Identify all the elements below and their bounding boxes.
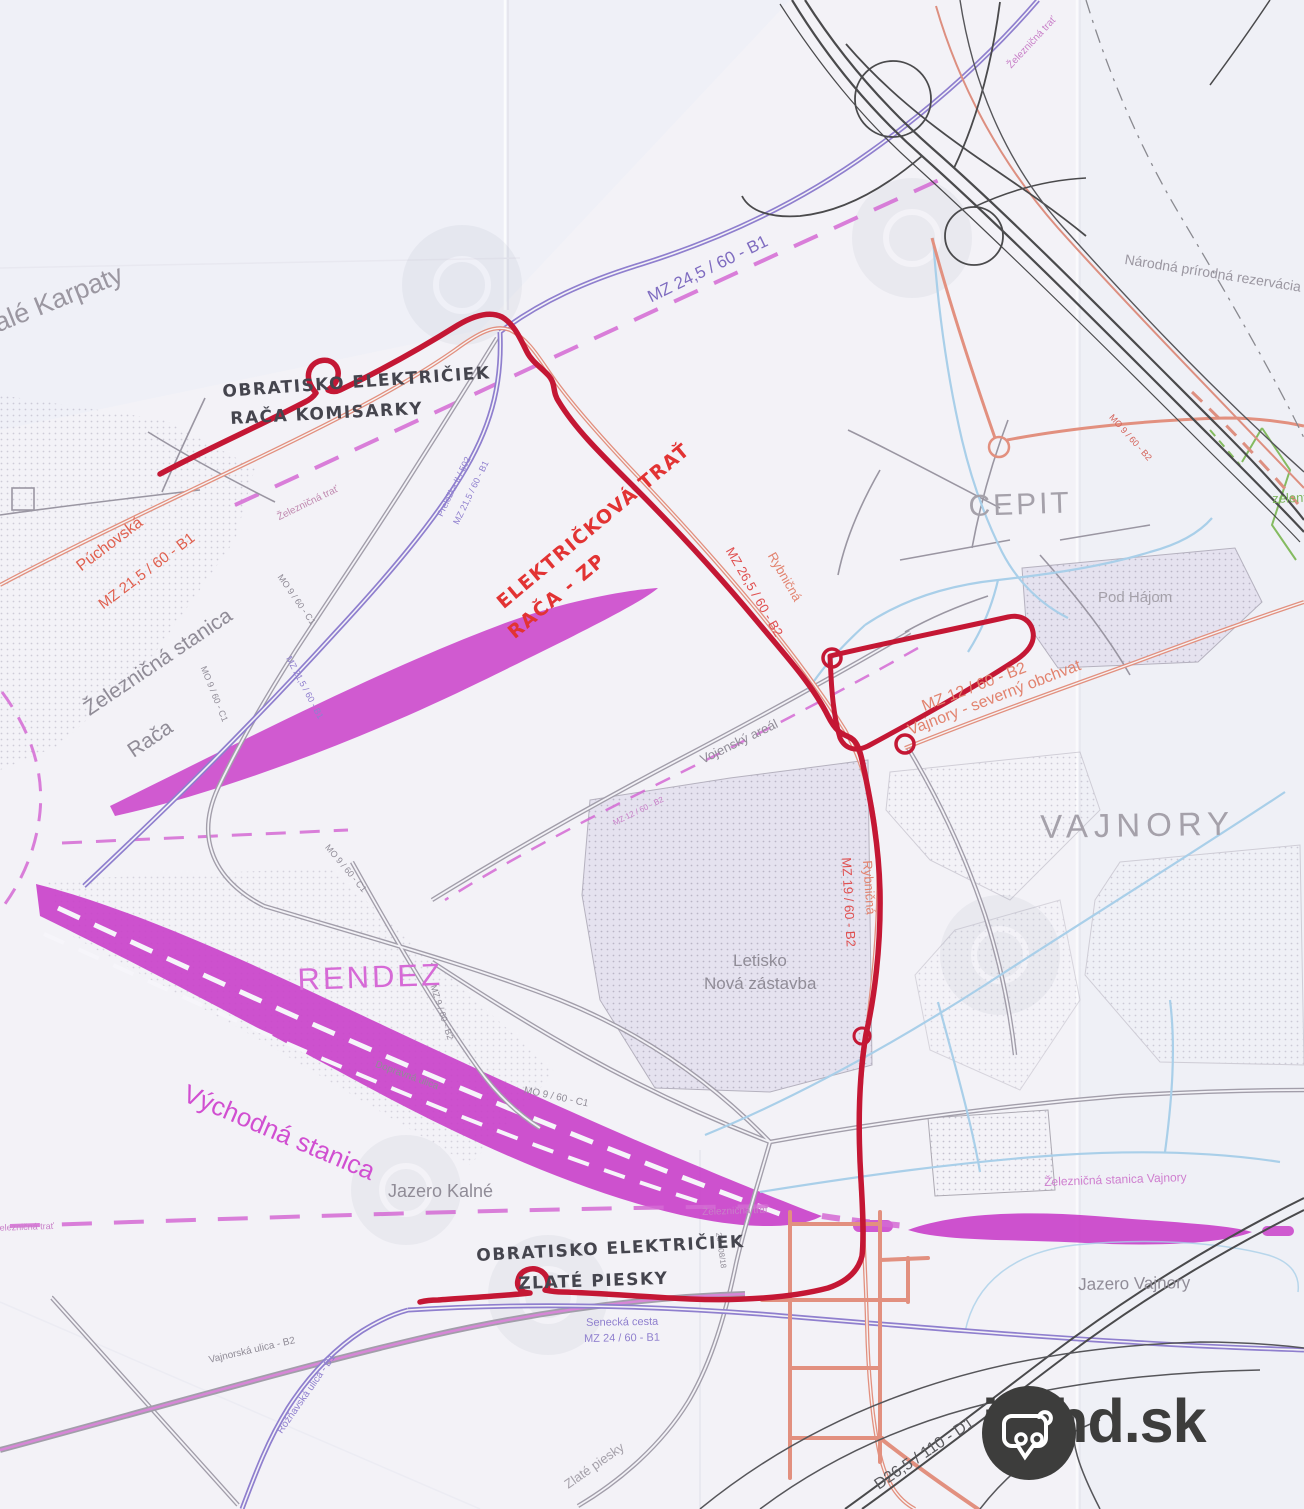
map-artwork xyxy=(0,0,1304,1509)
imhd-logo: imhd.sk xyxy=(982,1386,1206,1456)
scanned-transit-plan-map: alé KarpatyNárodná prírodná rezervácia Š… xyxy=(0,0,1304,1509)
paper-creases xyxy=(0,0,1304,1509)
imhd-bus-pin-icon xyxy=(982,1386,1076,1480)
